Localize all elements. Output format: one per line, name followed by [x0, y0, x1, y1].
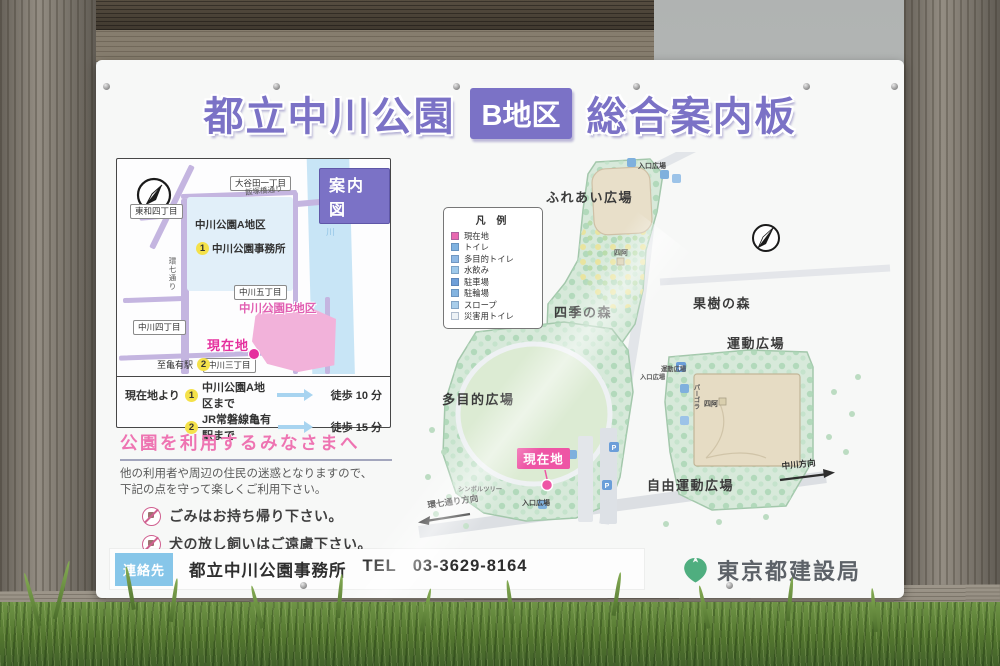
map-legend: 凡 例 現在地 トイレ 多目的トイレ 水飲み 駐車場 駐輪場 スロープ 災害用ト…: [443, 207, 543, 329]
central-path: [578, 436, 593, 522]
rule-litter: ごみはお持ち帰り下さい。: [120, 506, 392, 526]
tel-label: TEL: [363, 557, 397, 581]
office-number-icon: 1: [196, 242, 209, 255]
label-shiki: 四季の森: [554, 305, 612, 320]
route-destination: 中川公園A地区まで: [202, 379, 273, 411]
water-icon: [680, 416, 689, 425]
screw-icon: [103, 83, 110, 90]
legend-item: スロープ: [451, 299, 535, 311]
office-name: 都立中川公園事務所: [189, 557, 347, 581]
current-location-label: 現在地: [523, 452, 564, 467]
label-gazebo-2: 四阿: [704, 399, 718, 408]
label-pergola: パーゴラ: [693, 383, 700, 410]
label-fureai: ふれあい広場: [546, 190, 633, 205]
label-nakagawa3: 中川三丁目: [203, 358, 256, 373]
gazebo-icon: [617, 258, 624, 265]
compass-icon: [753, 225, 779, 251]
grass-foreground: [0, 602, 1000, 666]
vicinity-map-box: 中川 案内図 大谷田一丁目 東和四丁目 中川五丁目 中: [116, 158, 391, 428]
label-entrance-top: 入口広場: [637, 161, 666, 170]
vicinity-map: 中川 案内図 大谷田一丁目 東和四丁目 中川五丁目 中: [117, 159, 390, 374]
label-jiyu: 自由運動広場: [647, 478, 734, 493]
inset-map-title: 案内図: [319, 168, 390, 224]
tel-number: 03-3629-8164: [413, 557, 528, 581]
route-arrow-icon: [277, 393, 304, 397]
label-kaju: 果樹の森: [692, 296, 751, 311]
label-nakagawa5: 中川五丁目: [234, 285, 287, 300]
east-road: [660, 268, 890, 282]
label-nakagawa-direction: 中川方向: [781, 457, 816, 471]
rule-text: ごみはお持ち帰り下さい。: [169, 506, 343, 526]
office-row: 1 中川公園事務所: [196, 241, 286, 256]
label-area-b: 中川公園B地区: [239, 300, 316, 316]
board-title: 都立中川公園 B地区 総合案内板: [96, 84, 904, 142]
slope-icon: [451, 301, 459, 309]
label-office: 中川公園事務所: [212, 241, 286, 256]
legend-title: 凡 例: [451, 212, 535, 227]
disaster-toilet-icon: [451, 312, 459, 320]
screw-icon: [803, 83, 810, 90]
road-grid-h2: [123, 296, 185, 303]
current-location-label-inset: 現在地: [207, 335, 249, 354]
kameari-number-icon: 2: [197, 358, 210, 371]
route-row-a: 現在地より 1 中川公園A地区まで 徒歩 10 分: [125, 379, 382, 411]
label-kameari: 至亀有駅: [157, 358, 193, 371]
notice-title: 公園を利用するみなさまへ: [120, 430, 392, 455]
kameari-station-row: 至亀有駅 2: [157, 358, 210, 371]
notice-intro-line2: 下記の点を守って楽しくご利用下さい。: [120, 484, 326, 496]
sports-field: [694, 374, 800, 466]
label-entrance-mid: 入口広場: [640, 372, 666, 381]
label-undo-small: 運動広場: [661, 364, 687, 373]
label-iizukabashi-street: 飯塚橋通り: [245, 183, 283, 198]
label-tamokuteki: 多目的広場: [442, 392, 515, 407]
walking-routes: 現在地より 1 中川公園A地区まで 徒歩 10 分 2 JR常磐線亀有駅まで 徒…: [117, 376, 390, 427]
wooden-top-beam-dark: [36, 0, 654, 30]
screw-icon: [891, 83, 898, 90]
contact-label-badge: 連絡先: [115, 553, 173, 586]
title-area-badge: B地区: [470, 88, 573, 139]
current-location-dot: [542, 480, 553, 491]
label-symbol-tree: シンボルツリー: [458, 484, 502, 493]
park-information-board: 都立中川公園 B地区 総合案内板 中川: [96, 60, 904, 598]
svg-text:P: P: [605, 483, 610, 490]
water-icon: [672, 174, 681, 183]
svg-text:P: P: [612, 445, 617, 452]
toilet-icon: [660, 170, 669, 179]
label-kanana-street: 環七通り: [167, 257, 178, 291]
legend-item: 多目的トイレ: [451, 253, 535, 265]
gazebo-icon: [719, 398, 726, 405]
parking-icon: P: [602, 480, 612, 490]
screw-icon: [726, 582, 733, 589]
legend-item: 駐輪場: [451, 288, 535, 300]
route-time: 徒歩 10 分: [320, 387, 382, 403]
label-towa: 東和四丁目: [130, 204, 183, 219]
toilet-icon: [627, 158, 636, 167]
label-gazebo-1: 四阿: [614, 248, 628, 257]
label-area-a: 中川公園A地区: [195, 217, 266, 232]
title-park-name: 都立中川公園: [204, 84, 456, 142]
bicycle-parking-icon: [451, 289, 459, 297]
current-location-icon: [451, 232, 459, 240]
route-arrow-icon: [278, 425, 304, 429]
legend-item: 駐車場: [451, 276, 535, 288]
label-entrance-bottom: 入口広場: [521, 498, 550, 507]
legend-item: 水飲み: [451, 265, 535, 277]
label-undo: 運動広場: [727, 336, 785, 351]
contact-info: 都立中川公園事務所 TEL 03-3629-8164: [189, 557, 527, 581]
agency-signature: 東京都建設局: [682, 554, 861, 586]
label-nakagawa4: 中川四丁目: [133, 320, 186, 335]
screw-icon: [300, 582, 307, 589]
wooden-post-left: [0, 0, 96, 666]
title-board-type: 総合案内板: [586, 84, 796, 142]
wooden-top-beam: [36, 30, 654, 62]
legend-item: 現在地: [451, 230, 535, 242]
wooden-post-right: [904, 0, 1000, 666]
parking-icon: P: [609, 442, 619, 452]
screw-icon: [273, 83, 280, 90]
parking-icon: [451, 278, 459, 286]
screw-icon: [453, 83, 460, 90]
notice-divider: [120, 459, 392, 461]
screw-icon: [633, 83, 640, 90]
label-kanana-direction: 環七通り方向: [427, 493, 479, 510]
route-number-icon: 1: [185, 389, 198, 402]
accessible-toilet-icon: [451, 255, 459, 263]
notice-intro-line1: 他の利用者や周辺の住民の迷惑となりますので、: [120, 468, 372, 480]
toilet-icon: [451, 243, 459, 251]
legend-item: トイレ: [451, 242, 535, 254]
legend-item: 災害用トイレ: [451, 311, 535, 323]
drinking-fountain-icon: [451, 266, 459, 274]
agency-name: 東京都建設局: [717, 554, 861, 586]
tokyo-ginkgo-leaf-icon: [682, 556, 709, 584]
route-prefix: 現在地より: [125, 387, 181, 403]
no-litter-icon: [142, 507, 161, 526]
current-location-dot-inset: [248, 348, 260, 360]
toilet-icon: [680, 384, 689, 393]
